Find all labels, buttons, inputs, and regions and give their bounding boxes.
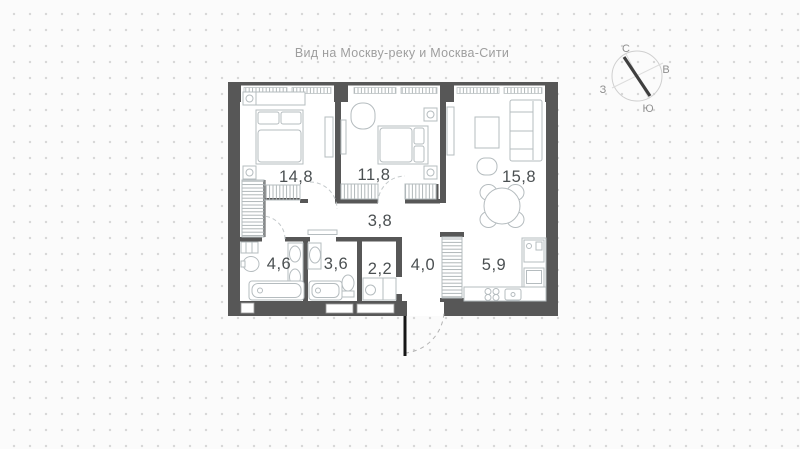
compass-letter-west: З — [600, 84, 607, 96]
dining-table — [480, 185, 524, 228]
entrance-door-leaf — [404, 316, 407, 356]
room-label-wc: 2,2 — [368, 260, 392, 278]
radiator — [341, 120, 346, 154]
wardrobe — [242, 180, 264, 237]
wardrobe — [442, 237, 462, 298]
wardrobe — [264, 185, 300, 200]
armchair — [477, 158, 497, 175]
dresser — [325, 117, 333, 157]
radiator — [447, 107, 454, 155]
compass-rose: С В З Ю — [600, 43, 670, 115]
toilet — [342, 275, 354, 291]
entrance-swing-arc — [405, 312, 444, 353]
room-label-living-room: 15,8 — [502, 168, 536, 186]
room-label-hallway: 4,0 — [411, 256, 435, 274]
wardrobe — [405, 184, 436, 199]
tv-stand — [475, 117, 499, 148]
washing-machine — [363, 278, 396, 300]
floorplan-page: Вид на Москву-реку и Москва-Сити — [0, 0, 800, 449]
compass-letter-south: Ю — [642, 103, 653, 115]
room-label-bedroom-1: 14,8 — [279, 168, 313, 186]
view-caption: Вид на Москву-реку и Москва-Сити — [295, 46, 509, 60]
bed-double — [378, 126, 428, 164]
bed-double — [256, 110, 303, 164]
floor-plan: Вид на Москву-реку и Москва-Сити — [0, 0, 800, 449]
wardrobe — [341, 184, 378, 199]
entrance-door — [404, 312, 445, 356]
armchair — [351, 103, 375, 129]
compass-letter-east: В — [662, 64, 669, 76]
room-label-kitchen: 5,9 — [482, 256, 506, 274]
room-label-corridor: 3,8 — [368, 212, 392, 230]
room-label-bedroom-2: 11,8 — [358, 166, 391, 184]
compass-letter-north: С — [622, 43, 630, 55]
sofa — [510, 100, 542, 161]
room-label-bathroom-2: 3,6 — [324, 255, 348, 273]
room-label-bathroom-1: 4,6 — [267, 255, 291, 273]
compass-needle — [624, 57, 650, 96]
door-leaf — [308, 230, 337, 235]
